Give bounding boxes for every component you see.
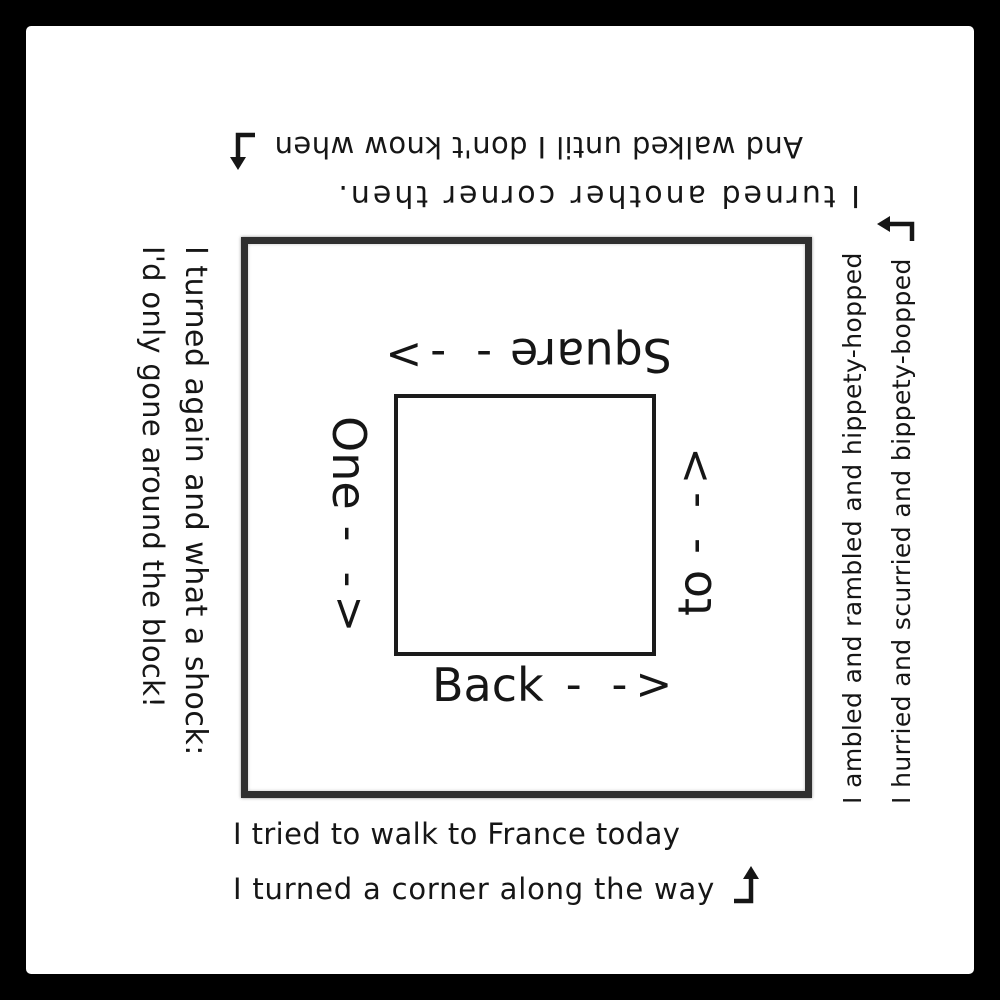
poem-page: { "colors": { "ink": "#161616", "backgro… [0, 0, 1000, 1000]
dashed-arrow-down: - -> [327, 526, 371, 641]
inner-label-one: One - -> [325, 416, 373, 634]
poem-text: I turned a corner along the way [233, 873, 715, 906]
poem-line-bottom-inner: I tried to walk to France today [233, 818, 680, 851]
poem-canvas: And walked until I don't know when I tur… [26, 26, 974, 974]
corner-turn-arrow-icon [877, 214, 915, 244]
poem-text: I tried to walk to France today [233, 818, 680, 851]
poem-line-right-outer: I hurried and scurried and bippety-boppe… [872, 204, 917, 804]
poem-line-left-inner: I turned again and what a shock: [178, 246, 218, 776]
inner-square [394, 394, 656, 656]
dashed-arrow-up: - -> [673, 439, 717, 554]
inner-label-word: Back [432, 662, 544, 708]
poem-line-right-inner: I ambled and rambled and hippety-hopped [823, 264, 868, 804]
inner-label-word: One [326, 416, 372, 510]
poem-text: I turned again and what a shock: [178, 246, 213, 756]
poem-text: I turned another corner then. [335, 178, 860, 213]
poem-text: I ambled and rambled and hippety-hopped [839, 252, 868, 804]
poem-text: I hurried and scurried and bippety-boppe… [888, 258, 917, 804]
corner-turn-arrow-icon [228, 132, 258, 170]
corner-turn-arrow-icon [731, 866, 761, 904]
inner-label-square: Square - -> [396, 328, 672, 382]
inner-label-to: to - -> [672, 444, 718, 616]
poem-text: And walked until I don't know when [274, 130, 803, 163]
inner-label-word: Square [510, 332, 672, 378]
page-background: And walked until I don't know when I tur… [26, 26, 974, 974]
poem-line-top-outer: And walked until I don't know when [211, 130, 803, 176]
poem-text: I'd only gone around the block! [136, 246, 169, 708]
poem-line-bottom-outer: I turned a corner along the way [233, 866, 761, 906]
poem-line-left-outer: I'd only gone around the block! [136, 246, 176, 736]
dashed-arrow-left: - -> [377, 333, 492, 377]
poem-line-top-inner: I turned another corner then. [306, 178, 860, 220]
inner-label-back: Back - -> [432, 662, 680, 708]
inner-label-word: to [672, 570, 718, 616]
dashed-arrow-right: - -> [566, 663, 681, 707]
